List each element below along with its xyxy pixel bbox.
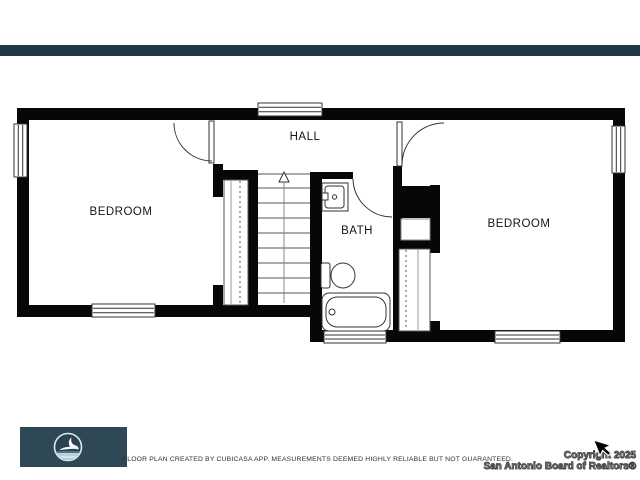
cursor-arrow-icon	[588, 437, 614, 463]
closet-right-sliding-door	[399, 249, 430, 331]
window-bedroom-left-bottom	[92, 304, 155, 317]
window-bedroom-right-bottom	[495, 331, 560, 343]
staircase	[258, 172, 310, 303]
window-bath-bottom	[324, 331, 386, 343]
bedroom-right-door	[397, 122, 444, 166]
floor-plan	[0, 0, 640, 480]
toilet	[321, 263, 355, 288]
brokerage-logo	[20, 427, 127, 467]
window-left-wall	[14, 124, 27, 177]
bathtub	[322, 293, 390, 331]
room-label-bedroom-right: BEDROOM	[488, 218, 551, 230]
room-label-bath: BATH	[341, 225, 373, 237]
window-right-wall	[612, 126, 625, 173]
bedroom-left-door	[174, 121, 214, 163]
flying-bird-logo-icon	[20, 427, 127, 467]
room-label-hall: HALL	[290, 131, 321, 143]
room-label-bedroom-left: BEDROOM	[90, 206, 153, 218]
window-hall-top	[258, 103, 322, 116]
closet-left-sliding-door	[224, 180, 248, 305]
wall-niche	[401, 219, 430, 240]
bath-door	[353, 179, 392, 217]
disclaimer-text: FLOOR PLAN CREATED BY CUBICASA APP. MEAS…	[123, 456, 513, 463]
sink-vanity	[322, 183, 348, 211]
screenshot-root: HALL BEDROOM BATH BEDROOM FLOOR PLAN CRE…	[0, 0, 640, 480]
